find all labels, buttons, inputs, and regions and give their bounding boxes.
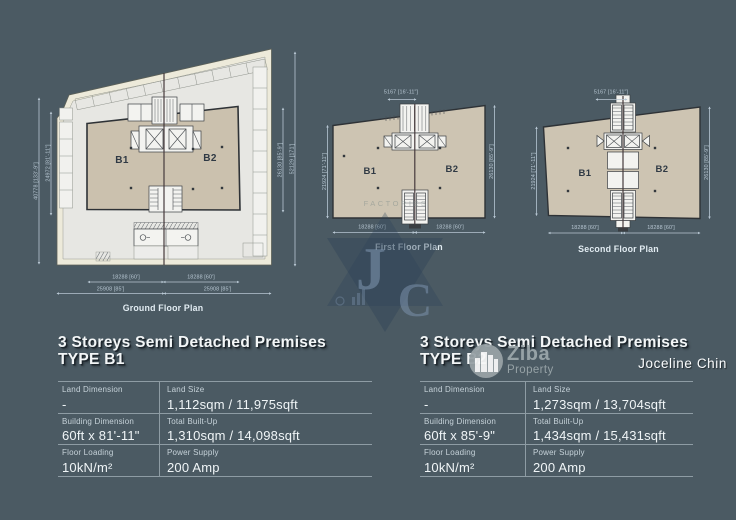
spec-label: Land Size (533, 385, 693, 394)
first-floor-plan: B1 B2 FACTORIES 5167 [16'-11"] 21924 [71… (322, 90, 495, 253)
ground-floor-plan: B1 B2 40778 [133'-9"] 24972 [81'-11"] 26… (34, 49, 296, 313)
svg-text:5167 [16'-11"]: 5167 [16'-11"] (594, 90, 629, 96)
dimension-left: 21924 [71'-11"] (322, 126, 328, 219)
jc-letter-c: C (398, 274, 433, 327)
spec-label: Total Built-Up (167, 417, 372, 426)
spec-label: Floor Loading (62, 448, 114, 457)
ziba-wordmark: Ziba Property (507, 344, 554, 376)
spec-row: Floor Loading 10kN/m² Power Supply 200 A… (420, 444, 693, 476)
unit-b2-label: B2 (656, 164, 669, 175)
b1-title-line: 3 Storeys Semi Detached Premises (58, 335, 326, 352)
dimension-top: 5167 [16'-11"] (384, 90, 419, 100)
agent-name: Joceline Chin (638, 356, 727, 371)
svg-text:52129 [171']: 52129 [171'] (290, 143, 296, 174)
spec-table-b2: Land Dimension - Land Size 1,273sqm / 13… (420, 381, 693, 477)
spec-value: 60ft x 81'-11" (62, 428, 140, 443)
svg-text:40778 [133'-9"]: 40778 [133'-9"] (34, 162, 40, 200)
svg-text:18288 [60']: 18288 [60'] (571, 225, 599, 231)
ziba-subtitle: Property (507, 364, 554, 376)
spec-value: 1,434sqm / 15,431sqft (533, 428, 693, 443)
core-bottom-stair-icon (149, 186, 182, 212)
svg-text:26130 [85'-9"]: 26130 [85'-9"] (278, 142, 284, 177)
svg-text:25908 [85']: 25908 [85'] (97, 287, 125, 293)
type-b1-title: 3 Storeys Semi Detached Premises TYPE B1 (58, 335, 326, 368)
jc-letter-j: J (356, 236, 386, 302)
spec-value: 10kN/m² (62, 460, 114, 475)
unit-b2-label: B2 (446, 164, 459, 175)
svg-text:18288 [60']: 18288 [60'] (187, 275, 215, 281)
svg-text:24972 [81'-11"]: 24972 [81'-11"] (46, 144, 52, 182)
plan-caption-ground: Ground Floor Plan (123, 303, 204, 313)
svg-text:18288 [60']: 18288 [60'] (647, 225, 675, 231)
spec-label: Total Built-Up (533, 417, 693, 426)
svg-text:18288 [60']: 18288 [60'] (112, 275, 140, 281)
b1-type-label: TYPE B1 (58, 352, 326, 369)
floor-plans-graphic: B1 B2 40778 [133'-9"] 24972 [81'-11"] 26… (0, 0, 736, 332)
dimension-right-inner: 26130 [85'-9"] (278, 108, 284, 212)
spec-label: Building Dimension (62, 417, 140, 426)
spec-value: 1,310sqm / 14,098sqft (167, 428, 372, 443)
unit-b1-label: B1 (579, 168, 592, 179)
dimension-left-outer: 40778 [133'-9"] (34, 98, 40, 264)
spec-row: Land Dimension - Land Size 1,273sqm / 13… (420, 381, 693, 413)
unit-b1-label: B1 (115, 155, 129, 166)
spec-row: Land Dimension - Land Size 1,112sqm / 11… (58, 381, 372, 413)
b2-title-line: 3 Storeys Semi Detached Premises (420, 335, 688, 352)
spec-label: Land Dimension (424, 385, 485, 394)
spec-table-b1: Land Dimension - Land Size 1,112sqm / 11… (58, 381, 372, 477)
spec-value: 200 Amp (167, 460, 372, 475)
jc-star-watermark: J C (327, 212, 443, 332)
spec-value: 1,112sqm / 11,975sqft (167, 397, 372, 412)
spec-label: Building Dimension (424, 417, 496, 426)
dimension-bottom-site: 25908 [85'] 25908 [85'] (57, 287, 271, 294)
svg-text:21924 [71'-11"]: 21924 [71'-11"] (322, 152, 328, 190)
dimension-left: 21924 [71'-11"] (531, 127, 537, 216)
dimension-left-inner: 24972 [81'-11"] (46, 112, 52, 215)
spec-value: 60ft x 85'-9" (424, 428, 496, 443)
dimension-right: 26130 [85'-9"] (489, 106, 495, 219)
spec-label: Power Supply (167, 448, 372, 457)
unit-b1-label: B1 (364, 166, 377, 177)
ziba-property-watermark: Ziba Property (469, 344, 554, 378)
lift-shafts-icon (131, 126, 201, 152)
second-floor-plan: B1 B2 5167 [16'-11"] 21924 [71'-11"] 261… (531, 90, 710, 255)
spec-value: - (62, 397, 123, 412)
unit-b2-label: B2 (203, 153, 217, 164)
ziba-logo-icon (469, 344, 503, 378)
svg-text:21924 [71'-11"]: 21924 [71'-11"] (531, 152, 537, 190)
spec-label: Land Dimension (62, 385, 123, 394)
svg-text:25908 [85']: 25908 [85'] (204, 287, 232, 293)
spec-value: 1,273sqm / 13,704sqft (533, 397, 693, 412)
entry-tab (409, 224, 421, 229)
plan-caption-second: Second Floor Plan (578, 244, 659, 254)
svg-text:5167 [16'-11"]: 5167 [16'-11"] (384, 90, 419, 96)
ziba-name: Ziba (507, 344, 554, 364)
dimension-right: 26130 [85'-9"] (704, 107, 710, 219)
svg-text:26130 [85'-9"]: 26130 [85'-9"] (489, 144, 495, 179)
svg-text:18288 [60']: 18288 [60'] (436, 225, 464, 231)
spec-label: Floor Loading (424, 448, 476, 457)
spec-label: Land Size (167, 385, 372, 394)
spec-row: Floor Loading 10kN/m² Power Supply 200 A… (58, 444, 372, 476)
spec-value: - (424, 397, 485, 412)
spec-value: 200 Amp (533, 460, 693, 475)
spec-row: Building Dimension 60ft x 81'-11" Total … (58, 413, 372, 445)
spec-label: Power Supply (533, 448, 693, 457)
spec-value: 10kN/m² (424, 460, 476, 475)
brochure-page: B1 B2 40778 [133'-9"] 24972 [81'-11"] 26… (0, 0, 736, 520)
dimension-bottom-units: 18288 [60'] 18288 [60'] (88, 275, 239, 283)
spec-row: Building Dimension 60ft x 85'-9" Total B… (420, 413, 693, 445)
factories-watermark: FACTORIES (364, 199, 429, 208)
svg-text:26130 [85'-9"]: 26130 [85'-9"] (704, 145, 710, 180)
dimension-right-outer: 52129 [171'] (290, 52, 296, 266)
